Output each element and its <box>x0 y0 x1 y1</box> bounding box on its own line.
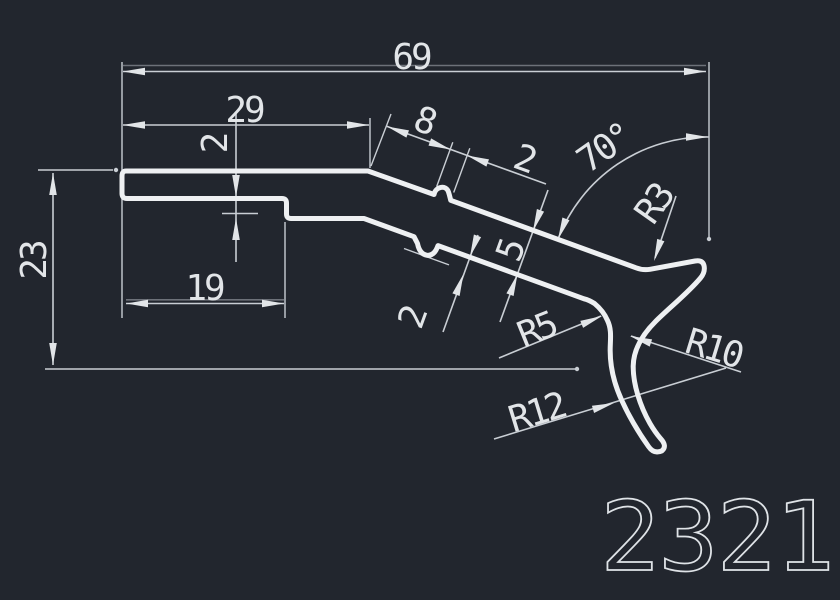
profile-drawing-2321: 69 29 8 2 70° R3 23 2 19 5 2 R5 R12 R10 … <box>0 0 840 600</box>
dim-lower-flat-width: 19 <box>185 268 224 309</box>
dim-step-depth: 2 <box>195 134 236 153</box>
dim-overall-width: 69 <box>392 37 431 78</box>
cad-canvas: 69 29 8 2 70° R3 23 2 19 5 2 R5 R12 R10 … <box>0 0 840 600</box>
part-number: 2321 <box>600 481 833 593</box>
dim-upper-flat-width: 29 <box>225 90 264 131</box>
dim-overall-height: 23 <box>14 242 55 280</box>
